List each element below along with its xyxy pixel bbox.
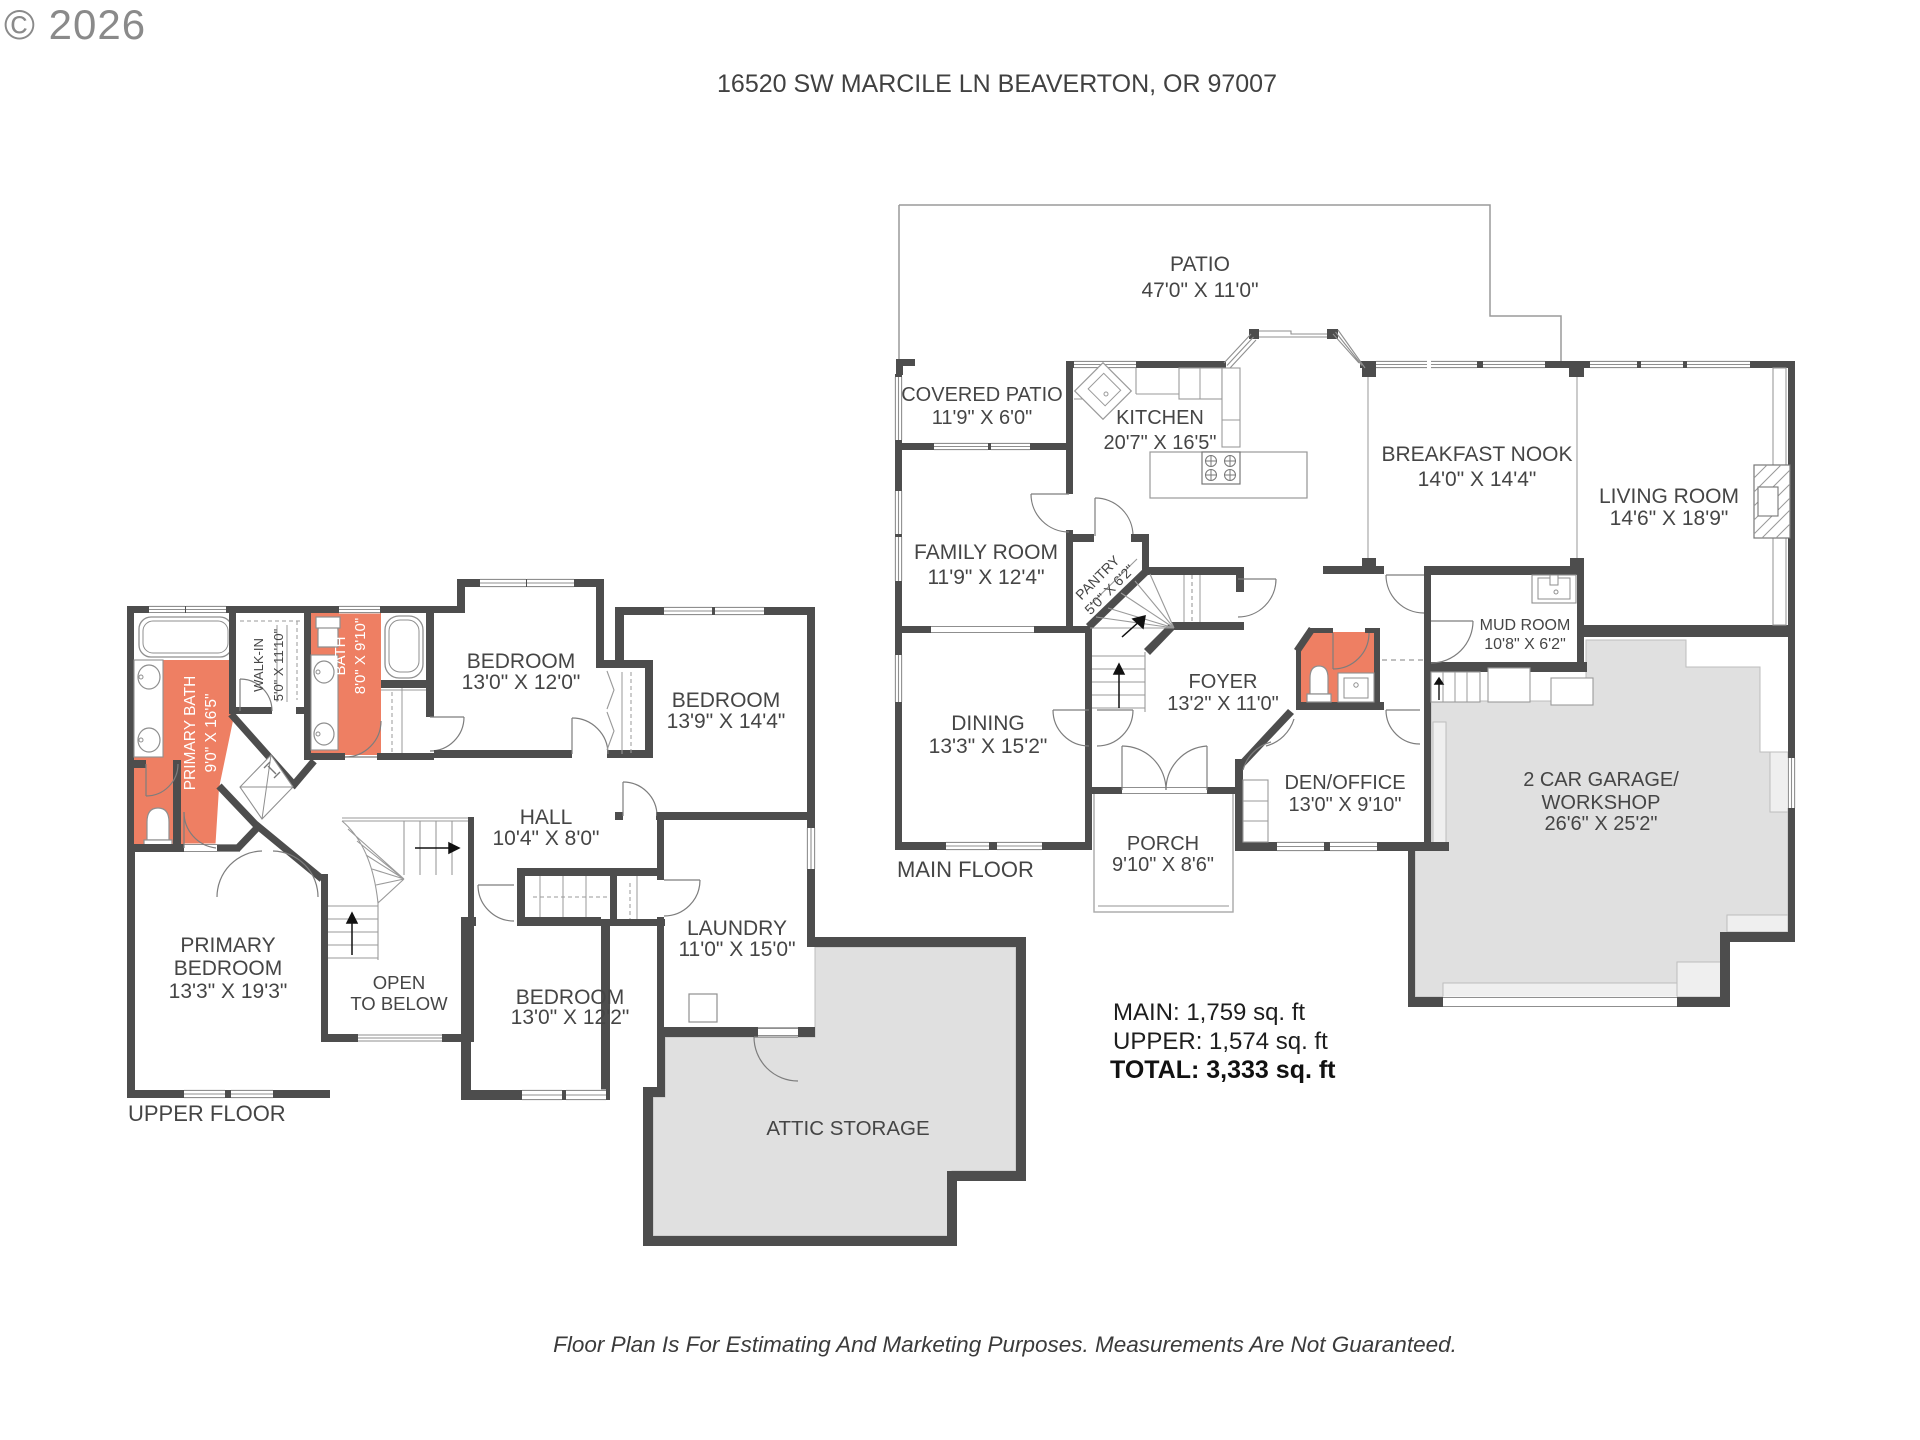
svg-text:13'3" X 15'2": 13'3" X 15'2" xyxy=(929,735,1048,758)
svg-text:11'9" X 6'0": 11'9" X 6'0" xyxy=(932,407,1032,429)
svg-text:LAUNDRY: LAUNDRY xyxy=(687,917,787,940)
svg-text:WALK-IN: WALK-IN xyxy=(251,638,266,692)
svg-text:Floor Plan Is For Estimating A: Floor Plan Is For Estimating And Marketi… xyxy=(553,1332,1457,1357)
svg-text:13'0" X 9'10": 13'0" X 9'10" xyxy=(1288,794,1401,816)
svg-text:10'8" X 6'2": 10'8" X 6'2" xyxy=(1484,636,1566,653)
svg-text:PATIO: PATIO xyxy=(1170,253,1230,276)
svg-text:OPEN: OPEN xyxy=(373,972,425,993)
svg-text:9'0" X 16'5": 9'0" X 16'5" xyxy=(203,694,220,773)
svg-text:MAIN: 1,759 sq. ft: MAIN: 1,759 sq. ft xyxy=(1113,999,1305,1026)
svg-text:KITCHEN: KITCHEN xyxy=(1116,407,1204,429)
svg-text:TO BELOW: TO BELOW xyxy=(350,993,448,1014)
svg-text:WORKSHOP: WORKSHOP xyxy=(1542,792,1661,814)
svg-text:UPPER: 1,574 sq. ft: UPPER: 1,574 sq. ft xyxy=(1113,1028,1328,1055)
svg-text:47'0" X 11'0": 47'0" X 11'0" xyxy=(1141,279,1258,302)
svg-text:BREAKFAST NOOK: BREAKFAST NOOK xyxy=(1382,443,1573,466)
svg-text:MUD ROOM: MUD ROOM xyxy=(1480,617,1571,634)
svg-text:13'3" X 19'3": 13'3" X 19'3" xyxy=(169,980,288,1003)
svg-text:11'0" X 15'0": 11'0" X 15'0" xyxy=(678,938,795,961)
svg-text:16520 SW MARCILE LN BEAVERTON,: 16520 SW MARCILE LN BEAVERTON, OR 97007 xyxy=(717,70,1277,98)
svg-text:BEDROOM: BEDROOM xyxy=(672,689,781,712)
svg-text:BATH: BATH xyxy=(332,637,349,676)
svg-text:13'2" X 11'0": 13'2" X 11'0" xyxy=(1167,693,1279,715)
svg-text:DINING: DINING xyxy=(951,712,1025,735)
svg-text:13'9" X 14'4": 13'9" X 14'4" xyxy=(667,710,786,733)
svg-text:2 CAR GARAGE/: 2 CAR GARAGE/ xyxy=(1523,769,1679,791)
svg-text:26'6" X 25'2": 26'6" X 25'2" xyxy=(1544,813,1657,835)
svg-text:PRIMARY BATH: PRIMARY BATH xyxy=(182,676,199,791)
svg-text:13'0" X 12'2": 13'0" X 12'2" xyxy=(511,1006,630,1029)
svg-text:14'6" X 18'9": 14'6" X 18'9" xyxy=(1610,507,1729,530)
svg-text:5'0" X 11'10": 5'0" X 11'10" xyxy=(271,628,286,701)
svg-text:20'7" X 16'5": 20'7" X 16'5" xyxy=(1103,432,1216,454)
svg-text:BEDROOM: BEDROOM xyxy=(467,650,576,673)
svg-text:ATTIC STORAGE: ATTIC STORAGE xyxy=(766,1117,929,1140)
svg-text:11'9" X 12'4": 11'9" X 12'4" xyxy=(927,566,1044,589)
svg-text:TOTAL: 3,333 sq. ft: TOTAL: 3,333 sq. ft xyxy=(1110,1056,1336,1084)
svg-text:PRIMARY: PRIMARY xyxy=(180,934,275,957)
svg-text:© 2026: © 2026 xyxy=(4,1,146,48)
svg-text:UPPER FLOOR: UPPER FLOOR xyxy=(128,1101,286,1126)
svg-text:PORCH: PORCH xyxy=(1127,833,1199,855)
svg-text:9'10" X 8'6": 9'10" X 8'6" xyxy=(1112,854,1214,876)
svg-text:LIVING ROOM: LIVING ROOM xyxy=(1599,485,1739,508)
svg-text:DEN/OFFICE: DEN/OFFICE xyxy=(1284,772,1405,794)
svg-text:10'4" X 8'0": 10'4" X 8'0" xyxy=(493,827,600,850)
svg-text:13'0" X 12'0": 13'0" X 12'0" xyxy=(462,671,581,694)
svg-text:FOYER: FOYER xyxy=(1189,671,1258,693)
svg-text:14'0" X 14'4": 14'0" X 14'4" xyxy=(1418,468,1537,491)
svg-text:MAIN FLOOR: MAIN FLOOR xyxy=(897,857,1034,882)
svg-text:COVERED PATIO: COVERED PATIO xyxy=(901,384,1063,406)
svg-text:HALL: HALL xyxy=(520,806,573,829)
svg-text:8'0" X 9'10": 8'0" X 9'10" xyxy=(352,618,369,694)
svg-text:FAMILY ROOM: FAMILY ROOM xyxy=(914,541,1058,564)
svg-text:BEDROOM: BEDROOM xyxy=(174,957,283,980)
